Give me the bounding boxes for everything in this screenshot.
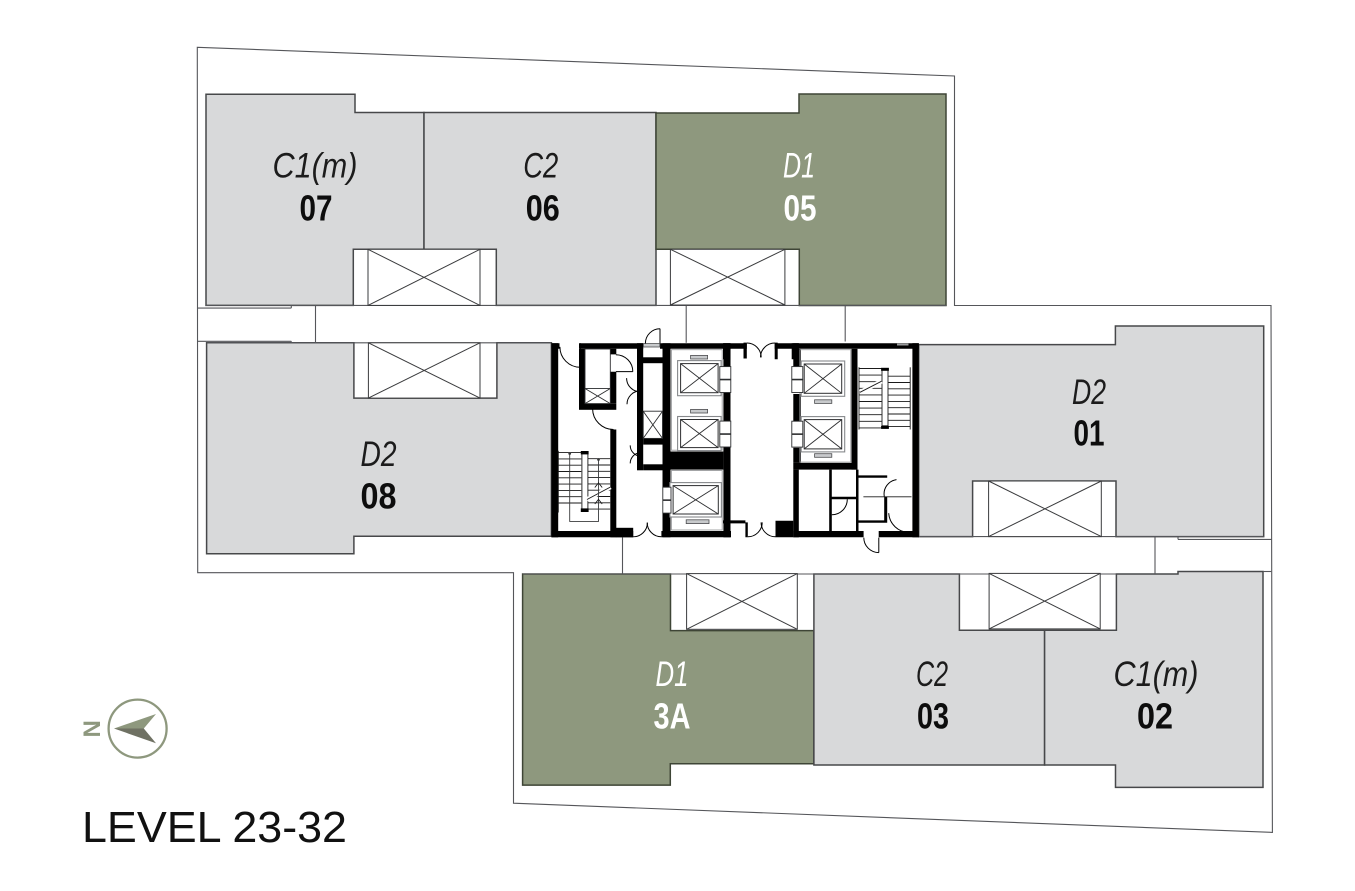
svg-text:C1(m): C1(m) — [1114, 655, 1199, 694]
svg-text:07: 07 — [300, 187, 333, 228]
svg-text:C2: C2 — [523, 147, 558, 186]
svg-text:3A: 3A — [654, 696, 691, 737]
svg-text:C2: C2 — [916, 655, 948, 694]
svg-text:03: 03 — [917, 696, 949, 737]
svg-text:01: 01 — [1074, 413, 1105, 454]
svg-text:05: 05 — [784, 187, 817, 228]
svg-text:02: 02 — [1137, 696, 1173, 737]
svg-text:C1(m): C1(m) — [273, 147, 358, 186]
svg-text:06: 06 — [526, 187, 560, 228]
svg-text:D2: D2 — [361, 435, 397, 474]
svg-text:LEVEL 23-32: LEVEL 23-32 — [82, 803, 347, 852]
svg-text:D1: D1 — [656, 655, 689, 694]
svg-text:N: N — [79, 720, 106, 737]
svg-text:D1: D1 — [783, 147, 815, 186]
svg-text:08: 08 — [361, 476, 397, 517]
svg-text:D2: D2 — [1072, 373, 1106, 412]
